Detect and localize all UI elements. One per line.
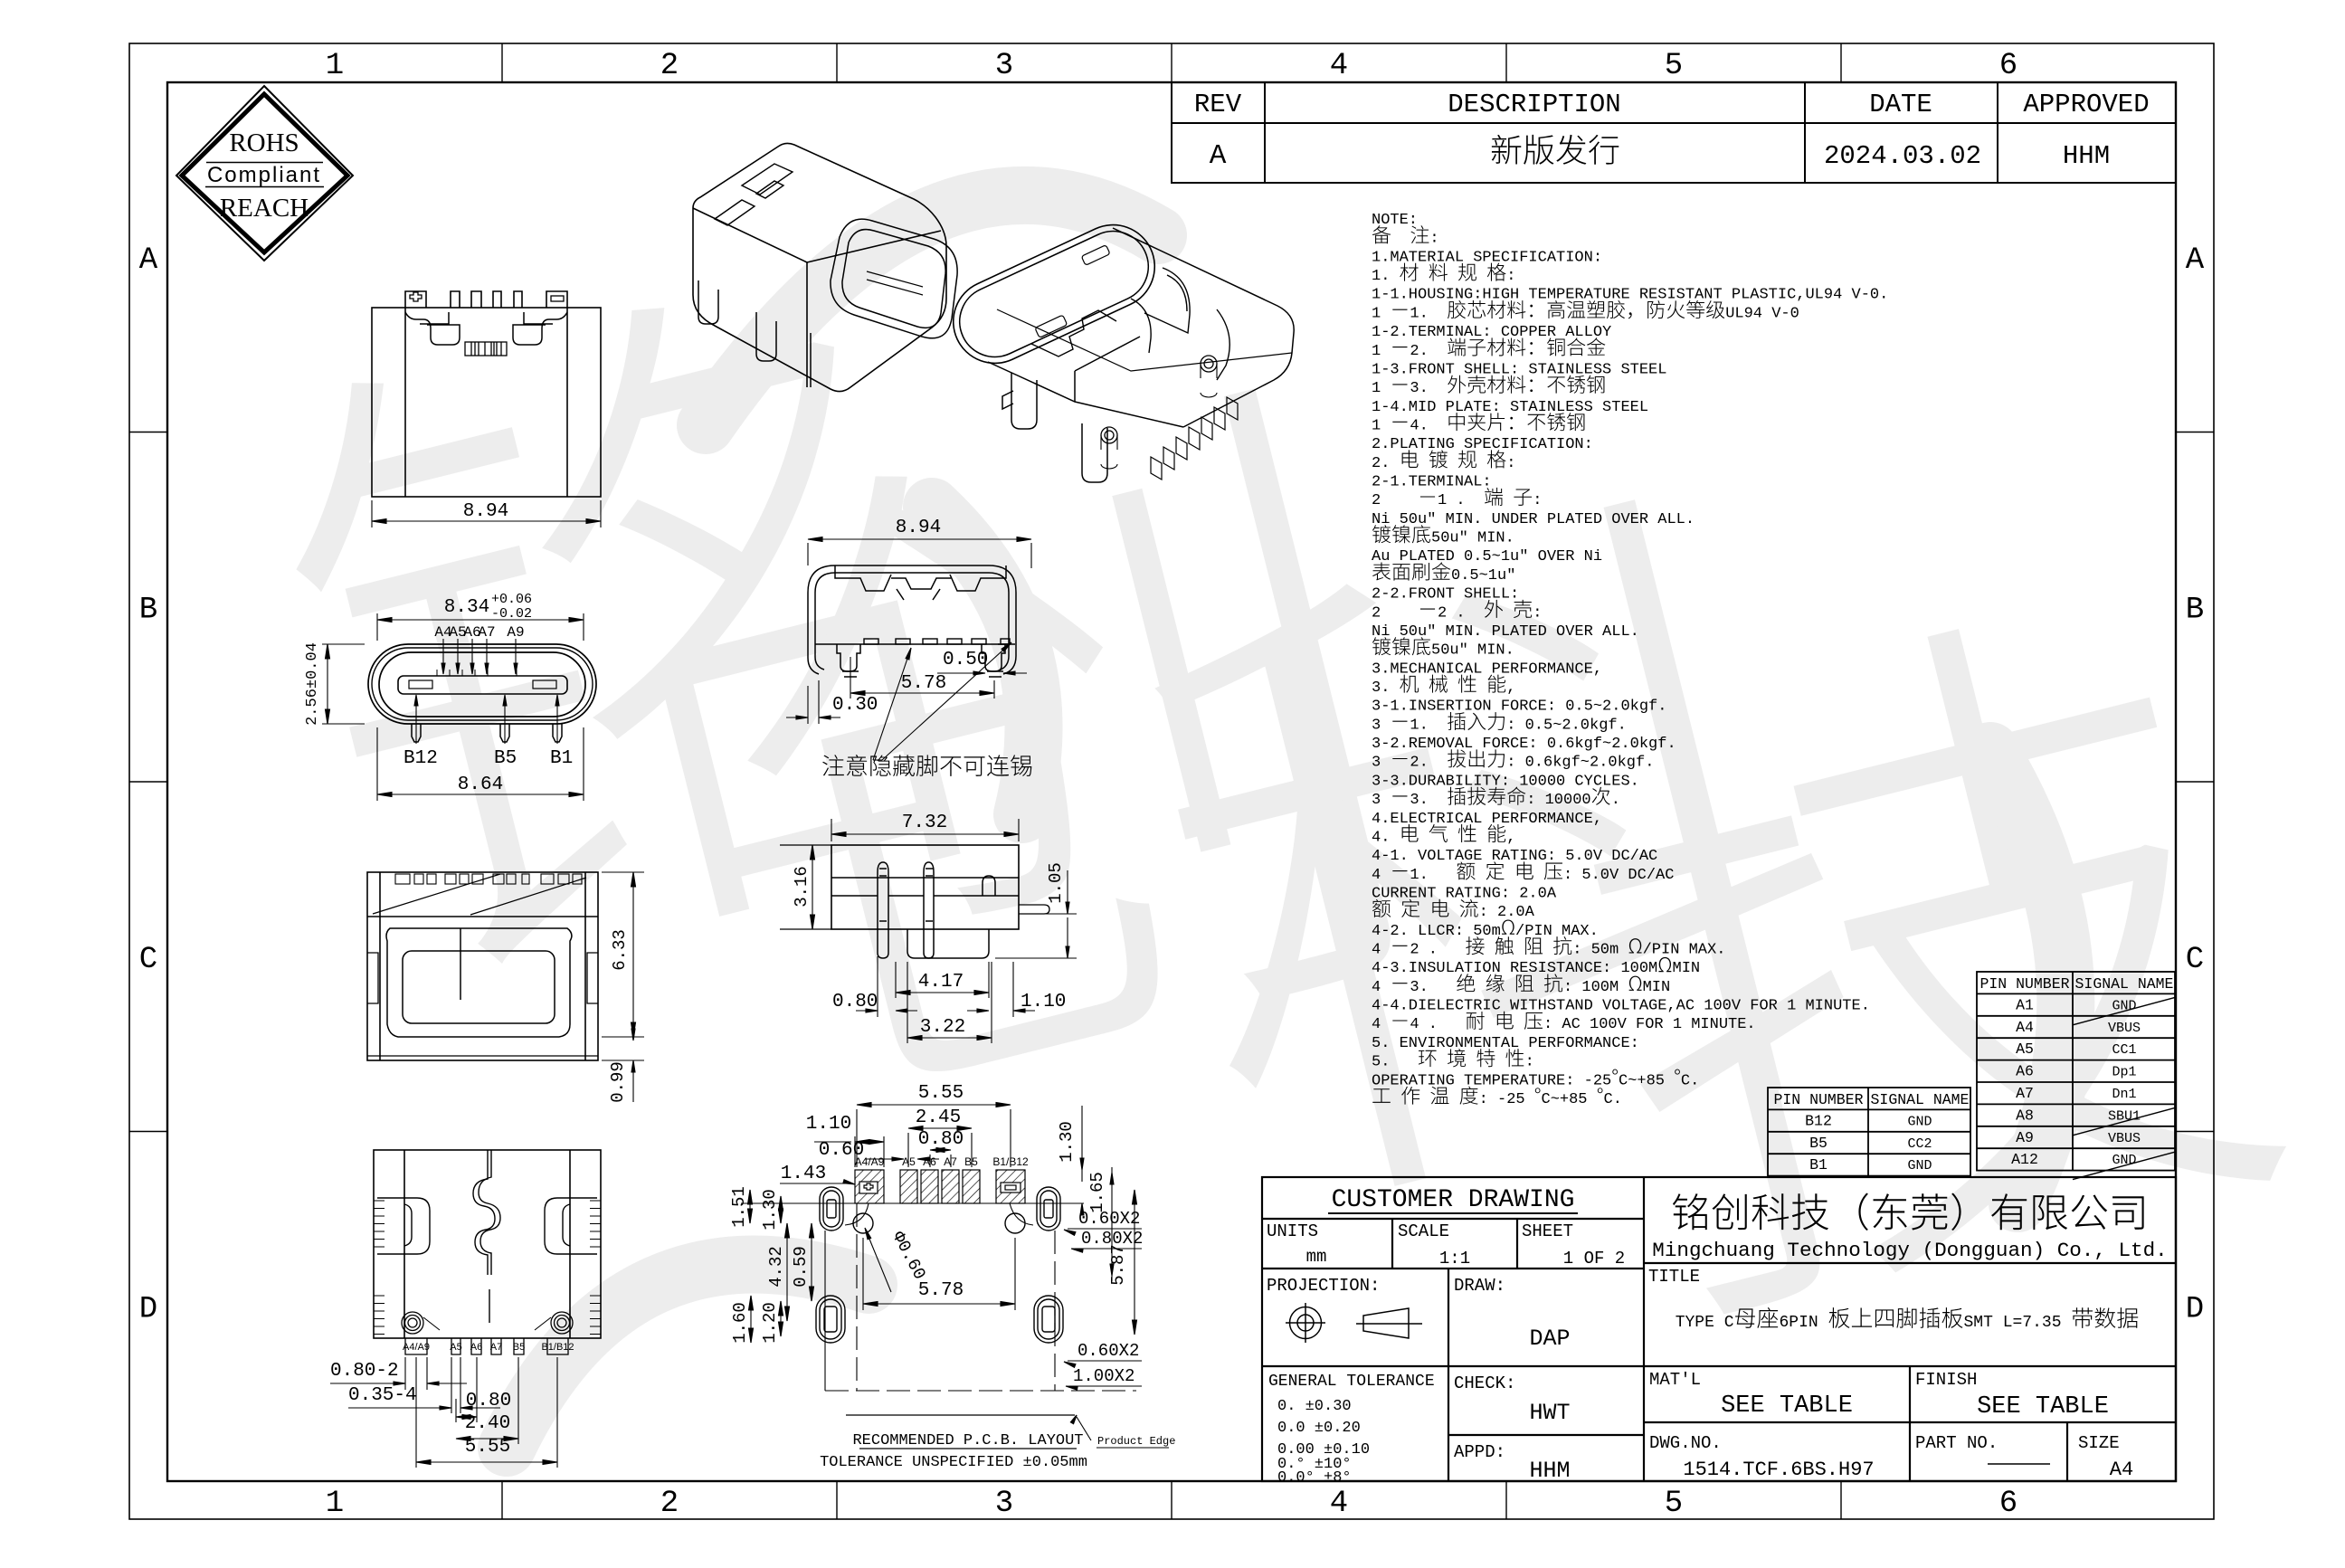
svg-text:TYPE C: TYPE C xyxy=(1676,1314,1734,1332)
svg-text:2.45: 2.45 xyxy=(916,1107,961,1128)
svg-text:.: . xyxy=(1611,792,1620,809)
svg-text:6: 6 xyxy=(1999,1487,2017,1521)
svg-text:1514.TCF.6BS.H97: 1514.TCF.6BS.H97 xyxy=(1683,1459,1874,1481)
svg-text:C: C xyxy=(2186,943,2204,977)
svg-text:2.: 2. xyxy=(1372,455,1390,472)
svg-text:0.80-2: 0.80-2 xyxy=(330,1361,399,1382)
svg-text:HHM: HHM xyxy=(2063,141,2110,171)
svg-text:B1: B1 xyxy=(550,748,573,769)
svg-text:0.0° ±8°: 0.0° ±8° xyxy=(1277,1469,1352,1487)
svg-text:1.10: 1.10 xyxy=(1021,992,1066,1012)
svg-text:0.35-4: 0.35-4 xyxy=(348,1385,417,1406)
svg-text:: 10000: : 10000 xyxy=(1526,792,1590,809)
svg-text:APPROVED: APPROVED xyxy=(2023,90,2149,119)
svg-text:6: 6 xyxy=(1999,49,2017,83)
svg-text:REACH: REACH xyxy=(220,194,309,223)
svg-text:5.78: 5.78 xyxy=(918,1280,964,1301)
svg-text:4.ELECTRICAL PERFORMANCE,: 4.ELECTRICAL PERFORMANCE, xyxy=(1372,811,1602,828)
svg-text:3: 3 xyxy=(1372,717,1381,734)
svg-text:0. ±0.30: 0. ±0.30 xyxy=(1277,1398,1352,1415)
svg-text:C~+85: C~+85 xyxy=(1619,1072,1665,1089)
svg-text:A9: A9 xyxy=(507,624,524,641)
svg-text:A: A xyxy=(139,243,158,278)
svg-text:5. ENVIRONMENTAL PERFORMANCE:: 5. ENVIRONMENTAL PERFORMANCE: xyxy=(1372,1035,1639,1052)
svg-text:4-4.DIELECTRIC WITHSTAND VOLTA: 4-4.DIELECTRIC WITHSTAND VOLTAGE,AC 100V… xyxy=(1372,998,1870,1015)
svg-text:/PIN MAX.: /PIN MAX. xyxy=(1643,942,1726,959)
svg-text:: 50m: : 50m xyxy=(1572,942,1619,959)
svg-text:A5: A5 xyxy=(902,1155,916,1168)
svg-text:A6: A6 xyxy=(2016,1063,2034,1080)
svg-text:4: 4 xyxy=(1372,1016,1381,1033)
svg-text:RECOMMENDED P.C.B. LAYOUT: RECOMMENDED P.C.B. LAYOUT xyxy=(852,1432,1083,1449)
svg-text:B12: B12 xyxy=(403,748,438,769)
svg-text:3-3.DURABILITY: 10000 CYCLES.: 3-3.DURABILITY: 10000 CYCLES. xyxy=(1372,773,1639,790)
svg-text:4: 4 xyxy=(1372,979,1381,996)
svg-text::: : xyxy=(1506,268,1515,285)
svg-text::: : xyxy=(1533,492,1542,509)
svg-text:4.: 4. xyxy=(1372,829,1390,846)
svg-text:HHM: HHM xyxy=(1529,1458,1570,1484)
svg-text:D: D xyxy=(2186,1293,2204,1327)
svg-text:: 5.0V DC/AC: : 5.0V DC/AC xyxy=(1563,867,1674,884)
svg-text:B5: B5 xyxy=(513,1342,525,1353)
svg-text:NOTE:: NOTE: xyxy=(1372,212,1418,229)
svg-text:50u" MIN.: 50u" MIN. xyxy=(1431,530,1514,547)
svg-text:UNITS: UNITS xyxy=(1267,1221,1318,1241)
svg-text:TITLE: TITLE xyxy=(1648,1267,1700,1287)
svg-text:SEE TABLE: SEE TABLE xyxy=(1977,1393,2109,1421)
svg-text:0.99: 0.99 xyxy=(608,1061,628,1103)
svg-text:TOLERANCE UNSPECIFIED ±0.05mm: TOLERANCE UNSPECIFIED ±0.05mm xyxy=(820,1454,1087,1471)
svg-text:Ni 50u" MIN. UNDER PLATED OVER: Ni 50u" MIN. UNDER PLATED OVER ALL. xyxy=(1372,511,1695,528)
svg-text:CURRENT RATING: 2.0A: CURRENT RATING: 2.0A xyxy=(1372,886,1557,903)
svg-text:1.10: 1.10 xyxy=(806,1114,851,1135)
svg-text:CC1: CC1 xyxy=(2112,1042,2136,1058)
svg-text:MAT'L: MAT'L xyxy=(1649,1370,1701,1390)
svg-text:1.30: 1.30 xyxy=(760,1189,780,1231)
svg-text:1: 1 xyxy=(1372,305,1381,322)
svg-text:2.40: 2.40 xyxy=(465,1413,510,1434)
svg-text::: : xyxy=(1525,1054,1534,1071)
svg-text:+0.06: +0.06 xyxy=(491,592,532,607)
svg-text:0.80: 0.80 xyxy=(466,1391,511,1411)
svg-text:1: 1 xyxy=(326,49,344,83)
svg-text:A9: A9 xyxy=(2016,1129,2034,1146)
svg-text:A6: A6 xyxy=(470,1342,482,1353)
svg-text:4: 4 xyxy=(1330,49,1348,83)
svg-text:GENERAL TOLERANCE: GENERAL TOLERANCE xyxy=(1268,1373,1435,1391)
svg-text:A1: A1 xyxy=(2016,996,2034,1013)
svg-text:3.22: 3.22 xyxy=(920,1017,965,1038)
svg-text:2: 2 xyxy=(660,49,679,83)
svg-text:1.20: 1.20 xyxy=(760,1302,780,1344)
svg-text:2: 2 xyxy=(1372,492,1381,509)
svg-text:: AC 100V FOR 1 MINUTE.: : AC 100V FOR 1 MINUTE. xyxy=(1543,1016,1756,1033)
svg-text:1.: 1. xyxy=(1410,867,1428,884)
svg-text:CHECK:: CHECK: xyxy=(1454,1373,1515,1393)
svg-text:4.32: 4.32 xyxy=(766,1246,786,1288)
svg-text:3.MECHANICAL PERFORMANCE,: 3.MECHANICAL PERFORMANCE, xyxy=(1372,660,1602,678)
svg-text:1.60: 1.60 xyxy=(730,1302,750,1344)
svg-text:PIN NUMBER: PIN NUMBER xyxy=(1979,975,2069,993)
svg-text:MIN: MIN xyxy=(1643,979,1671,996)
svg-text:A: A xyxy=(1210,140,1227,172)
svg-text:5.55: 5.55 xyxy=(918,1083,964,1104)
svg-text::: : xyxy=(1506,455,1515,472)
svg-text:: -25: : -25 xyxy=(1479,1091,1525,1108)
svg-text:4: 4 xyxy=(1372,867,1381,884)
svg-text:C: C xyxy=(139,943,157,977)
svg-text:PIN NUMBER: PIN NUMBER xyxy=(1773,1091,1863,1108)
svg-text:1.00X2: 1.00X2 xyxy=(1073,1366,1135,1386)
svg-text:4 .: 4 . xyxy=(1410,1016,1438,1033)
svg-text:0.30: 0.30 xyxy=(832,695,878,716)
svg-text:A7: A7 xyxy=(2016,1085,2034,1102)
svg-text:1: 1 xyxy=(1372,343,1381,360)
svg-text:A7: A7 xyxy=(490,1342,502,1353)
svg-text:2: 2 xyxy=(1372,604,1381,622)
svg-text:50u" MIN.: 50u" MIN. xyxy=(1431,642,1514,660)
svg-text:Dp1: Dp1 xyxy=(2112,1065,2136,1080)
svg-text:B1/B12: B1/B12 xyxy=(541,1342,574,1353)
svg-text:0.5~1u": 0.5~1u" xyxy=(1451,567,1515,584)
svg-text:Dn1: Dn1 xyxy=(2112,1087,2136,1102)
svg-text:1.30: 1.30 xyxy=(1057,1121,1077,1163)
svg-text:,: , xyxy=(1506,829,1515,846)
svg-text:8.94: 8.94 xyxy=(463,501,508,522)
svg-text:CC2: CC2 xyxy=(1907,1136,1932,1152)
svg-text:1-3.FRONT SHELL: STAINLESS STE: 1-3.FRONT SHELL: STAINLESS STEEL xyxy=(1372,361,1666,378)
svg-text:GND: GND xyxy=(1907,1114,1932,1129)
svg-text:0.50: 0.50 xyxy=(943,650,988,670)
svg-text:1.MATERIAL SPECIFICATION:: 1.MATERIAL SPECIFICATION: xyxy=(1372,249,1602,266)
svg-text:2.56±0.04: 2.56±0.04 xyxy=(304,642,321,726)
svg-text:mm: mm xyxy=(1306,1247,1327,1267)
svg-text:0.60X2: 0.60X2 xyxy=(1078,1209,1140,1229)
svg-text:VBUS: VBUS xyxy=(2108,1131,2141,1146)
svg-text::: : xyxy=(1533,604,1542,622)
svg-text:1.: 1. xyxy=(1410,717,1428,734)
svg-text:Ni 50u" MIN. PLATED OVER ALL.: Ni 50u" MIN. PLATED OVER ALL. xyxy=(1372,623,1639,641)
svg-text:3-2.REMOVAL FORCE: 0.6kgf~2.0k: 3-2.REMOVAL FORCE: 0.6kgf~2.0kgf. xyxy=(1372,736,1676,753)
svg-text:B: B xyxy=(139,594,157,628)
svg-text:4.: 4. xyxy=(1410,418,1428,435)
svg-text:1.51: 1.51 xyxy=(729,1186,749,1228)
svg-text:0.59: 0.59 xyxy=(791,1246,811,1288)
svg-text:3.: 3. xyxy=(1410,979,1428,996)
svg-text:VBUS: VBUS xyxy=(2108,1021,2141,1036)
svg-text:A5: A5 xyxy=(2016,1041,2034,1058)
svg-text:2: 2 xyxy=(660,1487,679,1521)
svg-text:OPERATING TEMPERATURE: -25: OPERATING TEMPERATURE: -25 xyxy=(1372,1072,1611,1089)
svg-text:5.55: 5.55 xyxy=(465,1437,510,1458)
svg-text:2.: 2. xyxy=(1410,755,1428,772)
svg-text:APPD:: APPD: xyxy=(1454,1442,1505,1462)
svg-text:1: 1 xyxy=(326,1487,344,1521)
svg-text:5.: 5. xyxy=(1372,1054,1390,1071)
svg-text:DRAW:: DRAW: xyxy=(1454,1276,1505,1296)
svg-text:PROJECTION:: PROJECTION: xyxy=(1267,1276,1380,1296)
svg-text:1.43: 1.43 xyxy=(781,1164,826,1184)
svg-text:C.: C. xyxy=(1681,1072,1699,1089)
svg-text:B1: B1 xyxy=(1809,1156,1828,1174)
svg-text:DATE: DATE xyxy=(1869,90,1932,119)
svg-text:SIGNAL NAME: SIGNAL NAME xyxy=(2075,975,2174,993)
svg-text:A5: A5 xyxy=(450,1342,461,1353)
svg-text:A4: A4 xyxy=(2016,1019,2034,1036)
svg-text:5: 5 xyxy=(1665,49,1683,83)
svg-text:0.80: 0.80 xyxy=(918,1129,964,1150)
svg-text:SCALE: SCALE xyxy=(1398,1221,1449,1241)
svg-text:A7: A7 xyxy=(478,624,495,641)
svg-text:5.78: 5.78 xyxy=(901,673,946,694)
svg-text:Compliant: Compliant xyxy=(207,163,321,187)
svg-text:1-1.HOUSING:HIGH TEMPERATURE R: 1-1.HOUSING:HIGH TEMPERATURE RESISTANT P… xyxy=(1372,287,1888,304)
svg-text:1.: 1. xyxy=(1372,268,1390,285)
svg-text:4: 4 xyxy=(1330,1487,1348,1521)
svg-text:,: , xyxy=(1506,679,1515,697)
svg-text:4: 4 xyxy=(1372,942,1381,959)
svg-text:ROHS: ROHS xyxy=(229,128,299,157)
svg-text:3-1.INSERTION FORCE: 0.5~2.0kg: 3-1.INSERTION FORCE: 0.5~2.0kgf. xyxy=(1372,698,1666,716)
svg-text:HWT: HWT xyxy=(1529,1400,1570,1426)
svg-text:DWG.NO.: DWG.NO. xyxy=(1649,1433,1722,1453)
svg-text:DAP: DAP xyxy=(1529,1326,1570,1352)
svg-text:A: A xyxy=(2186,243,2205,278)
svg-text:7.32: 7.32 xyxy=(902,813,947,833)
svg-text:D: D xyxy=(139,1293,157,1327)
svg-text:A4: A4 xyxy=(2110,1459,2133,1481)
svg-text:: 0.6kgf~2.0kgf.: : 0.6kgf~2.0kgf. xyxy=(1506,755,1654,772)
svg-text:3: 3 xyxy=(1372,755,1381,772)
svg-text:4.17: 4.17 xyxy=(918,972,964,993)
svg-text:5.87: 5.87 xyxy=(1108,1244,1128,1286)
svg-text:Product Edge: Product Edge xyxy=(1097,1435,1175,1448)
svg-text:MIN: MIN xyxy=(1673,960,1701,977)
svg-text:GND: GND xyxy=(1907,1158,1932,1174)
svg-text:1:1: 1:1 xyxy=(1439,1249,1470,1269)
svg-text:1: 1 xyxy=(1372,418,1381,435)
svg-text:A8: A8 xyxy=(2016,1107,2034,1124)
svg-text:SIGNAL NAME: SIGNAL NAME xyxy=(1871,1091,1970,1108)
svg-text:4-1. VOLTAGE RATING: 5.0V DC/A: 4-1. VOLTAGE RATING: 5.0V DC/AC xyxy=(1372,848,1657,865)
svg-text:8.64: 8.64 xyxy=(458,774,503,795)
svg-text:Au PLATED 0.5~1u" OVER Ni: Au PLATED 0.5~1u" OVER Ni xyxy=(1372,548,1602,565)
svg-text:6.33: 6.33 xyxy=(610,929,630,971)
svg-text:2024.03.02: 2024.03.02 xyxy=(1824,141,1981,171)
svg-text:4-2. LLCR: 50m: 4-2. LLCR: 50m xyxy=(1372,923,1501,940)
svg-text:CUSTOMER DRAWING: CUSTOMER DRAWING xyxy=(1332,1186,1575,1214)
svg-text:A4/A9: A4/A9 xyxy=(403,1342,430,1353)
svg-text:2 .: 2 . xyxy=(1438,604,1466,622)
svg-text:3.: 3. xyxy=(1410,380,1428,397)
svg-text:3: 3 xyxy=(1372,792,1381,809)
svg-text:C.: C. xyxy=(1604,1091,1622,1108)
svg-text:REV: REV xyxy=(1194,90,1242,119)
svg-text:8.34: 8.34 xyxy=(444,597,489,618)
svg-text:SEE TABLE: SEE TABLE xyxy=(1721,1392,1853,1420)
svg-text:1.05: 1.05 xyxy=(1046,862,1066,904)
svg-text:3: 3 xyxy=(995,1487,1013,1521)
svg-text:A12: A12 xyxy=(2011,1151,2038,1168)
svg-text:4-3.INSULATION RESISTANCE: 100: 4-3.INSULATION RESISTANCE: 100M xyxy=(1372,960,1657,977)
svg-text:1-4.MID PLATE: STAINLESS STEEL: 1-4.MID PLATE: STAINLESS STEEL xyxy=(1372,399,1648,416)
svg-text:UL94 V-0: UL94 V-0 xyxy=(1725,305,1799,322)
svg-text:1: 1 xyxy=(1372,380,1381,397)
svg-text:2-1.TERMINAL:: 2-1.TERMINAL: xyxy=(1372,474,1492,491)
svg-text:B: B xyxy=(2186,594,2204,628)
svg-text:2.: 2. xyxy=(1410,343,1428,360)
svg-text:Mingchuang Technology (Donggua: Mingchuang Technology (Dongguan) Co., Lt… xyxy=(1652,1239,2167,1262)
svg-text:B5: B5 xyxy=(494,748,517,769)
svg-text:1.65: 1.65 xyxy=(1087,1172,1107,1213)
svg-text:5: 5 xyxy=(1665,1487,1683,1521)
svg-text:SMT L=7.35: SMT L=7.35 xyxy=(1964,1314,2062,1332)
svg-text:2.PLATING SPECIFICATION:: 2.PLATING SPECIFICATION: xyxy=(1372,436,1593,453)
svg-text:8.94: 8.94 xyxy=(896,518,941,538)
svg-text:B5: B5 xyxy=(1809,1135,1828,1152)
svg-text:1.: 1. xyxy=(1410,305,1428,322)
svg-text:PART NO.: PART NO. xyxy=(1915,1433,1998,1453)
svg-text:0.60X2: 0.60X2 xyxy=(1078,1341,1139,1361)
svg-text:3.: 3. xyxy=(1372,679,1390,697)
svg-text:3.: 3. xyxy=(1410,792,1428,809)
svg-text:0.60: 0.60 xyxy=(819,1140,864,1161)
svg-text:: 100M: : 100M xyxy=(1563,979,1619,996)
svg-text:2 .: 2 . xyxy=(1410,942,1438,959)
svg-text:1 OF 2: 1 OF 2 xyxy=(1563,1249,1625,1269)
svg-text:3.16: 3.16 xyxy=(792,866,812,908)
svg-text:DESCRIPTION: DESCRIPTION xyxy=(1448,90,1620,119)
svg-text:0.0 ±0.20: 0.0 ±0.20 xyxy=(1277,1420,1361,1437)
svg-text:: 2.0A: : 2.0A xyxy=(1479,904,1535,921)
svg-text:1 .: 1 . xyxy=(1438,492,1466,509)
svg-text:6PIN: 6PIN xyxy=(1780,1314,1818,1332)
svg-text:FINISH: FINISH xyxy=(1915,1370,1977,1390)
svg-text:SIZE: SIZE xyxy=(2078,1433,2120,1453)
svg-text:SHEET: SHEET xyxy=(1522,1221,1573,1241)
svg-text::: : xyxy=(1429,231,1438,248)
svg-text:B12: B12 xyxy=(1805,1112,1832,1129)
svg-text:: 0.5~2.0kgf.: : 0.5~2.0kgf. xyxy=(1506,717,1627,734)
svg-text:3: 3 xyxy=(995,49,1013,83)
svg-text:C~+85: C~+85 xyxy=(1542,1091,1588,1108)
